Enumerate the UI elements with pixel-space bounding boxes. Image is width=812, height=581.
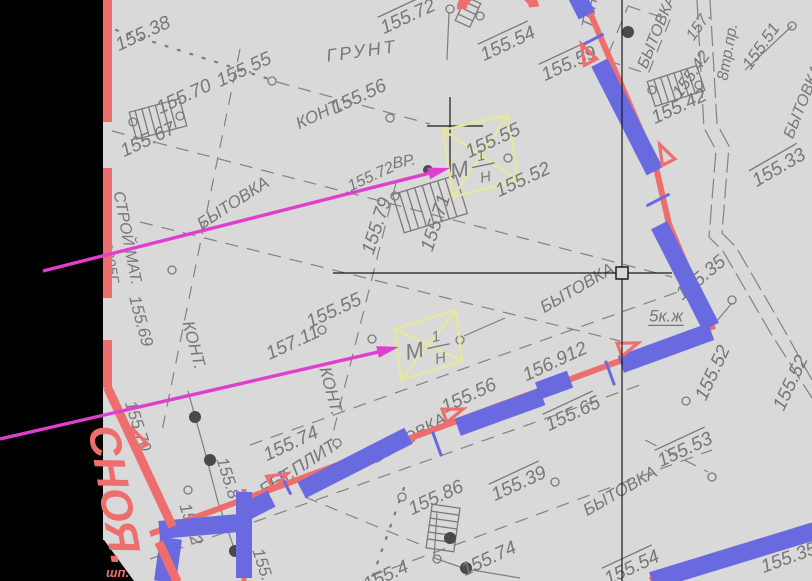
map-label: 5к.ж xyxy=(648,307,684,326)
cad-survey-drawing: 155.38155.55ГРУНТ155.56КОНТ.155.70155.67… xyxy=(0,0,812,581)
street-mark-label: шп. xyxy=(106,565,129,580)
center-square-marker xyxy=(616,267,628,279)
svg-text:5к.ж: 5к.ж xyxy=(649,307,684,326)
